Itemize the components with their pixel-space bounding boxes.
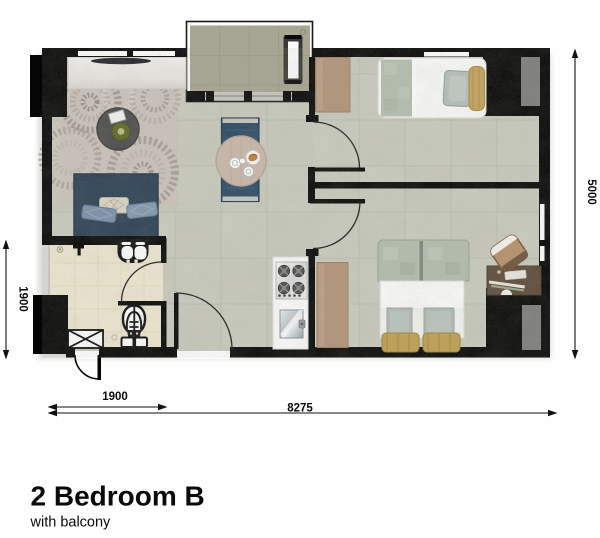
svg-text:2 Bedroom B: 2 Bedroom B — [31, 481, 205, 512]
svg-text:1900: 1900 — [17, 286, 29, 312]
svg-text:with balcony: with balcony — [30, 515, 112, 531]
svg-text:8275: 8275 — [287, 403, 313, 415]
svg-text:5000: 5000 — [585, 179, 597, 205]
svg-text:1900: 1900 — [102, 391, 128, 403]
